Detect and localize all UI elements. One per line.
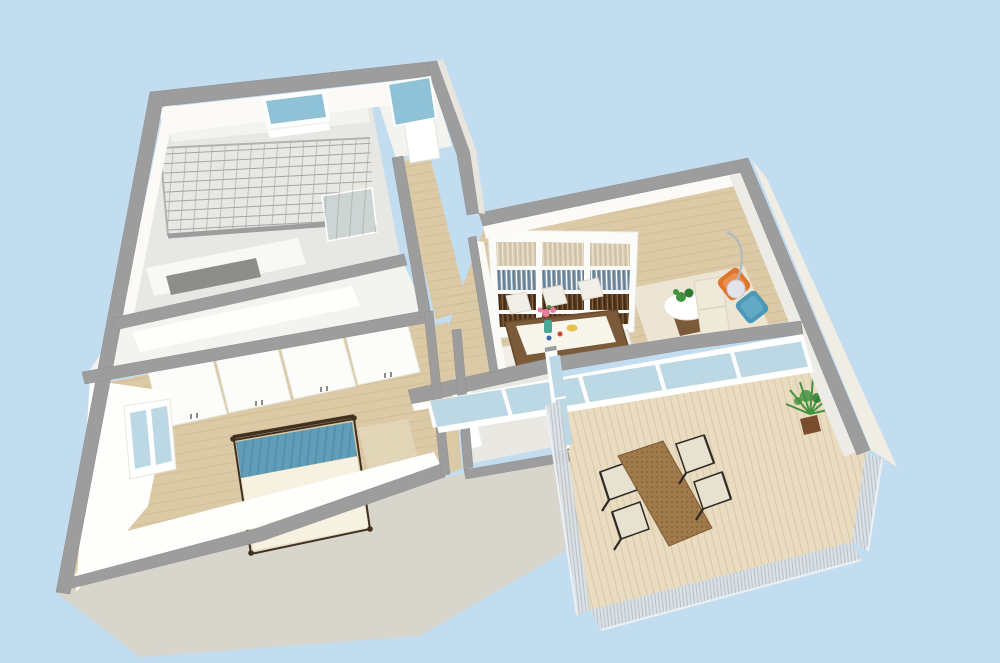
flowers [542,309,550,317]
floor-plan-stage [0,0,1000,663]
books-stripes [590,243,630,266]
bed-post [248,550,254,556]
books-stripes [497,270,536,290]
bed-post [367,526,373,532]
fruit-bowl [567,325,578,332]
bookshelf-row-tan-stripes [496,242,630,266]
flowers [538,308,543,313]
books-stripes [496,242,536,266]
fruit [558,332,563,337]
bed-post [351,415,357,421]
dining-chair [542,285,567,307]
dining-chair [578,278,603,300]
flower-vase [544,320,552,333]
floor-plan-3d [0,0,1000,663]
corner-window-pane [388,77,436,126]
plant-foliage [794,397,802,405]
flowers [550,307,556,313]
glass-panel-lines [322,188,377,241]
lamp-globe [727,280,745,298]
table-plant [673,289,679,295]
flower-leaves [547,305,551,309]
bed-post [230,436,236,442]
books-stripes [542,242,584,266]
dining-chair [506,292,531,314]
table-plant [685,289,694,298]
toy-cube [547,336,552,341]
bookshelf-row-blue-stripes [497,270,630,290]
lamp-mount [727,231,731,235]
